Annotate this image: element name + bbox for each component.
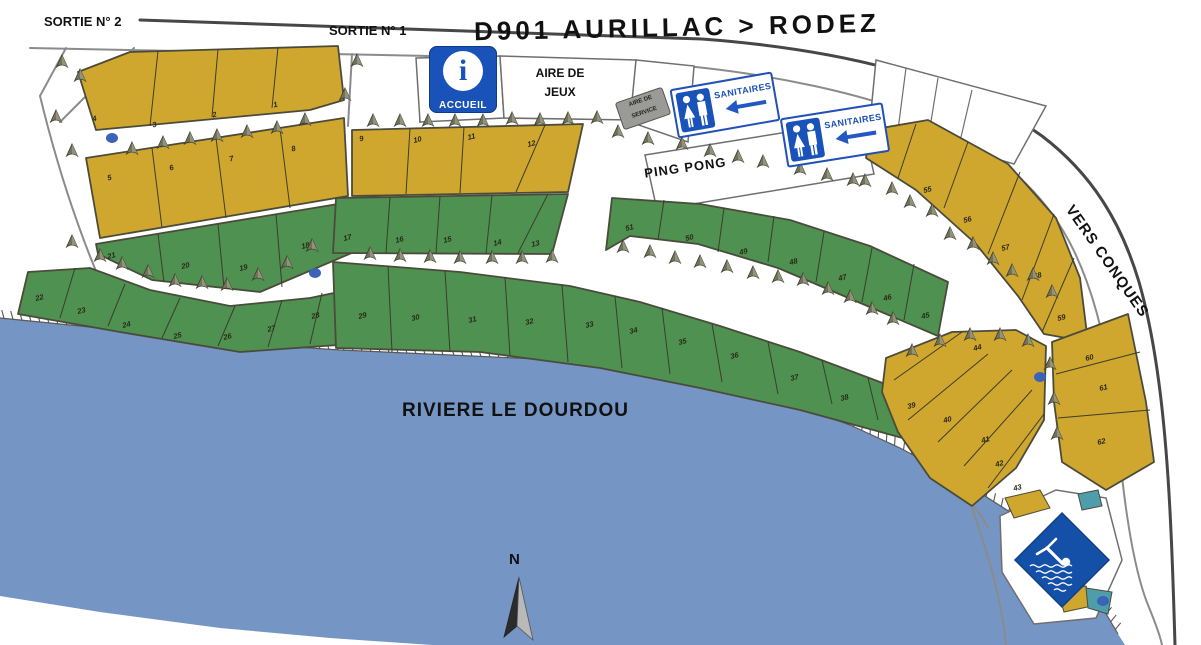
water-point — [309, 268, 321, 278]
bank-hatch-tick — [994, 493, 996, 501]
playground-label-line2: JEUX — [514, 83, 606, 102]
sanitary-sign-label: SANITAIRES — [713, 81, 772, 101]
reception-sign: i ACCUEIL — [429, 46, 497, 113]
decor-patch — [1078, 490, 1102, 510]
left-arrow-icon — [840, 131, 876, 141]
bank-hatch-tick — [11, 311, 13, 319]
reception-sign-label: ACCUEIL — [429, 100, 497, 111]
water-point — [1034, 372, 1046, 382]
bank-hatch-tick — [2, 310, 4, 318]
info-icon: i — [443, 51, 483, 91]
sanitary-sign-label: SANITAIRES — [824, 112, 883, 131]
bank-hatch-tick — [1115, 623, 1120, 630]
plots-60-62 — [1052, 314, 1154, 490]
compass-north-label: N — [509, 551, 520, 568]
bank-hatch-tick — [1111, 615, 1116, 622]
water-point — [106, 133, 118, 143]
bank-hatch-tick — [895, 437, 896, 446]
bank-hatch-tick — [1001, 498, 1003, 506]
playground-label-line1: AIRE DE — [514, 64, 606, 83]
left-arrow-icon — [730, 100, 766, 110]
exit-1-label: SORTIE N° 1 — [329, 23, 406, 38]
pitch-number: 43 — [1011, 482, 1023, 493]
road-edge — [348, 54, 352, 126]
water-point — [1097, 596, 1109, 606]
playground-label: AIRE DE JEUX — [514, 64, 606, 102]
campsite-map-page: 4321567821201918222324252627289101112171… — [0, 0, 1201, 645]
river-name-label: RIVIERE LE DOURDOU — [402, 400, 629, 422]
exit-2-label: SORTIE N° 2 — [44, 14, 121, 29]
